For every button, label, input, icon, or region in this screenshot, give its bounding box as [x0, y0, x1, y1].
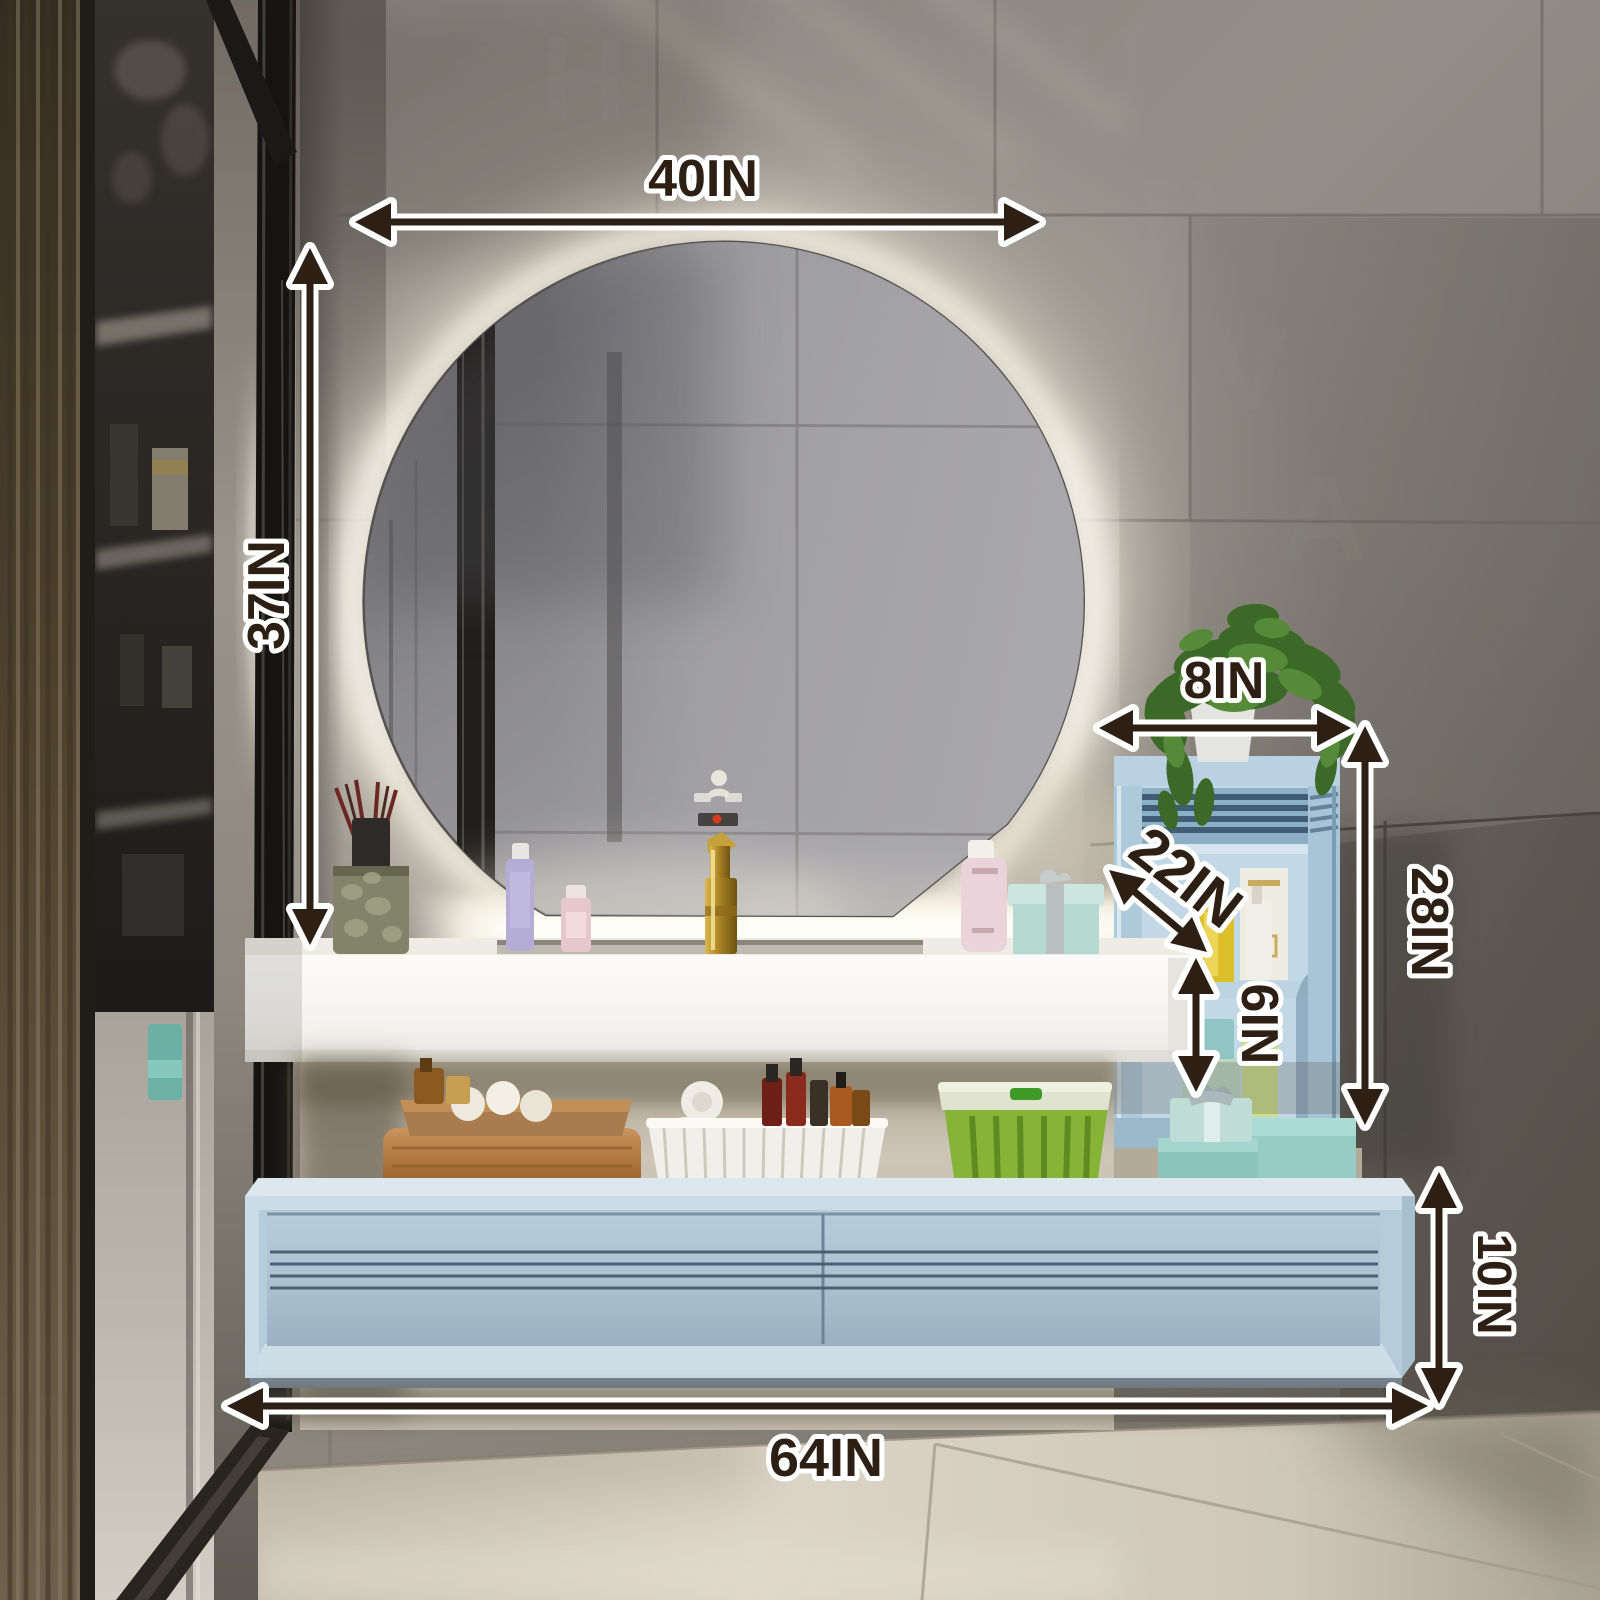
svg-text:40IN: 40IN [648, 150, 758, 208]
svg-text:6IN: 6IN [1230, 984, 1288, 1065]
svg-text:37IN: 37IN [238, 540, 296, 650]
svg-text:V: V [1210, 302, 1290, 436]
svg-text:P: P [1140, 152, 1220, 286]
svg-text:10IN: 10IN [1467, 1233, 1520, 1334]
svg-text:64IN: 64IN [769, 1428, 883, 1488]
svg-text:H: H [540, 12, 627, 146]
svg-text:28IN: 28IN [1400, 867, 1458, 977]
svg-text:8IN: 8IN [1184, 652, 1265, 710]
svg-text:A: A [1280, 452, 1367, 586]
